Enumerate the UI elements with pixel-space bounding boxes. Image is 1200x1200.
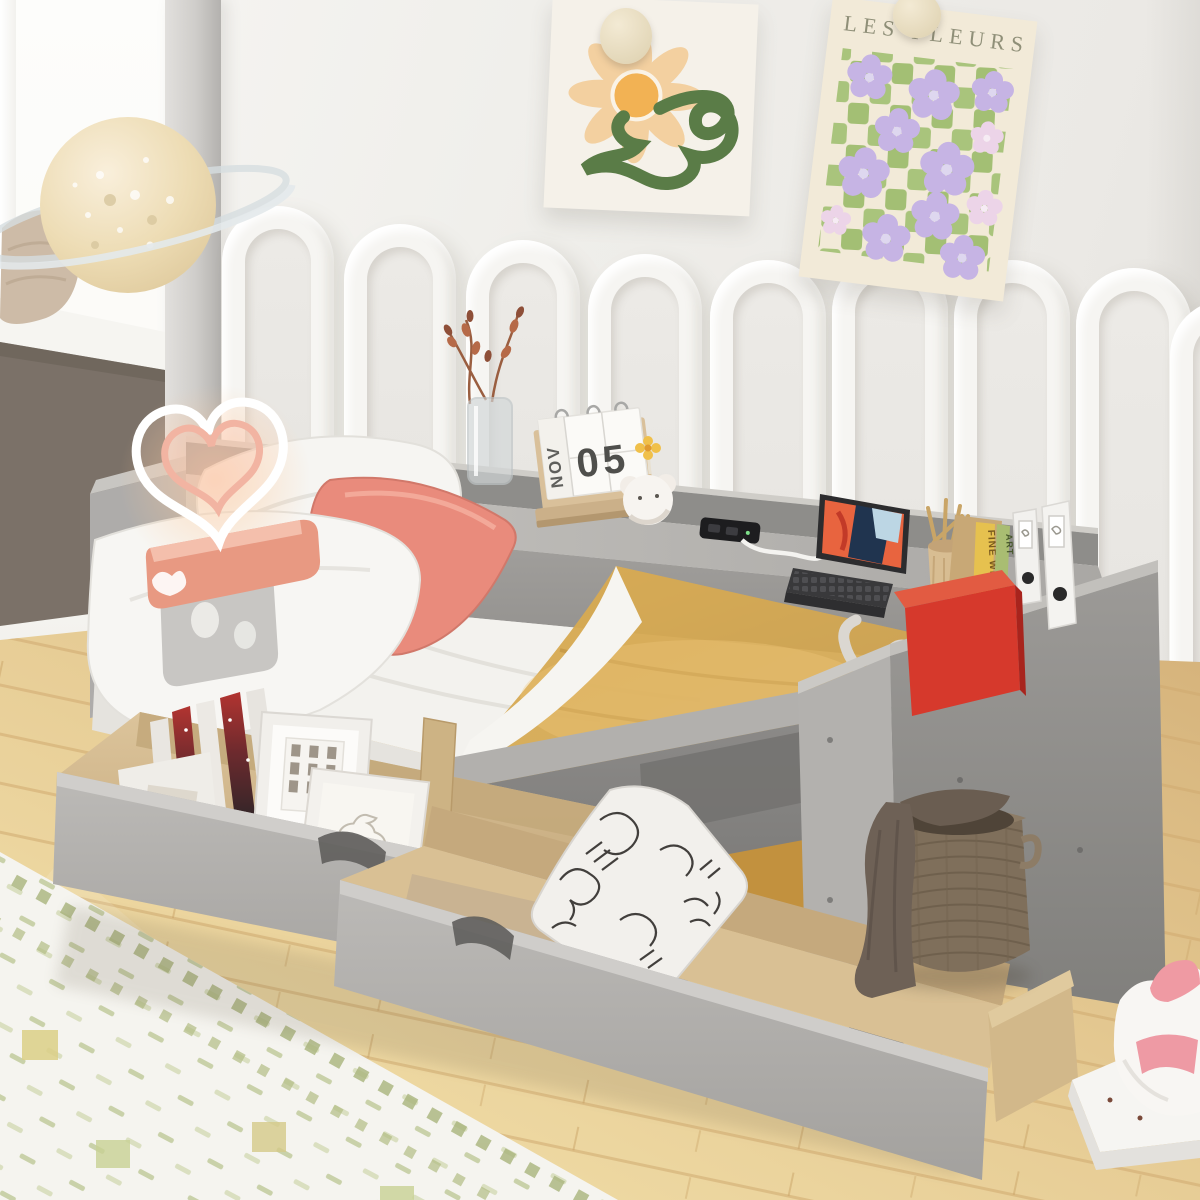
- calendar-day: 05: [574, 436, 631, 486]
- wicker-basket: [855, 789, 1038, 998]
- saturn-decoration: [0, 117, 293, 293]
- flower-vase: [442, 305, 526, 484]
- bedroom-photo: LES FLEURS: [0, 0, 1200, 1200]
- svg-text:ART: ART: [1004, 534, 1015, 556]
- scene-art: NOV 05: [0, 0, 1200, 1200]
- heart-lamp: [119, 384, 320, 609]
